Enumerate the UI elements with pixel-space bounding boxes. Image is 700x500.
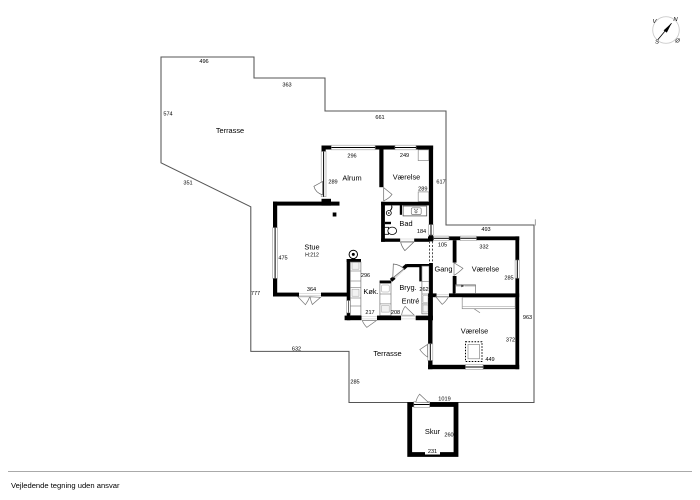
svg-text:Stue: Stue: [304, 243, 319, 252]
svg-text:449: 449: [485, 357, 494, 363]
svg-text:475: 475: [278, 256, 287, 262]
svg-text:661: 661: [375, 115, 384, 121]
svg-text:Værelse: Værelse: [393, 173, 421, 182]
svg-text:363: 363: [282, 83, 291, 89]
svg-text:184: 184: [417, 229, 426, 235]
svg-text:285: 285: [350, 380, 359, 386]
svg-text:Gang: Gang: [434, 265, 452, 274]
svg-text:Ø: Ø: [674, 39, 680, 45]
svg-text:105: 105: [438, 243, 447, 249]
svg-text:364: 364: [307, 287, 316, 293]
svg-text:372: 372: [506, 338, 515, 344]
svg-text:260: 260: [444, 433, 453, 439]
svg-text:1019: 1019: [438, 397, 450, 403]
svg-text:Alrum: Alrum: [342, 174, 361, 183]
svg-text:332: 332: [479, 244, 488, 250]
svg-text:217: 217: [365, 310, 374, 316]
svg-text:N: N: [673, 17, 678, 23]
svg-text:574: 574: [163, 112, 172, 118]
svg-text:Værelse: Værelse: [472, 265, 500, 274]
svg-text:285: 285: [504, 276, 513, 282]
svg-text:Vejledende tegning uden ansvar: Vejledende tegning uden ansvar: [11, 481, 120, 490]
svg-text:Værelse: Værelse: [461, 327, 489, 336]
svg-text:Bryg.: Bryg.: [399, 283, 416, 292]
svg-text:231: 231: [428, 449, 437, 455]
svg-text:Terrasse: Terrasse: [373, 349, 401, 358]
svg-text:262: 262: [419, 287, 428, 293]
svg-text:632: 632: [292, 347, 301, 353]
svg-text:777: 777: [251, 291, 260, 297]
svg-text:296: 296: [347, 154, 356, 160]
svg-text:496: 496: [199, 59, 208, 65]
svg-text:Køk.: Køk.: [363, 287, 378, 296]
svg-text:Skur: Skur: [425, 427, 441, 436]
svg-text:296: 296: [361, 273, 370, 279]
svg-text:208: 208: [391, 310, 400, 316]
svg-text:S: S: [655, 40, 659, 46]
svg-text:289: 289: [418, 186, 427, 192]
svg-text:351: 351: [183, 181, 192, 187]
svg-text:H:212: H:212: [305, 253, 319, 259]
svg-text:963: 963: [523, 315, 532, 321]
svg-text:493: 493: [481, 227, 490, 233]
svg-text:617: 617: [436, 180, 445, 186]
svg-text:Terrasse: Terrasse: [216, 126, 244, 135]
svg-text:Bad: Bad: [399, 219, 412, 228]
svg-text:289: 289: [328, 180, 337, 186]
svg-text:Entré: Entré: [402, 297, 420, 306]
svg-text:249: 249: [400, 153, 409, 159]
